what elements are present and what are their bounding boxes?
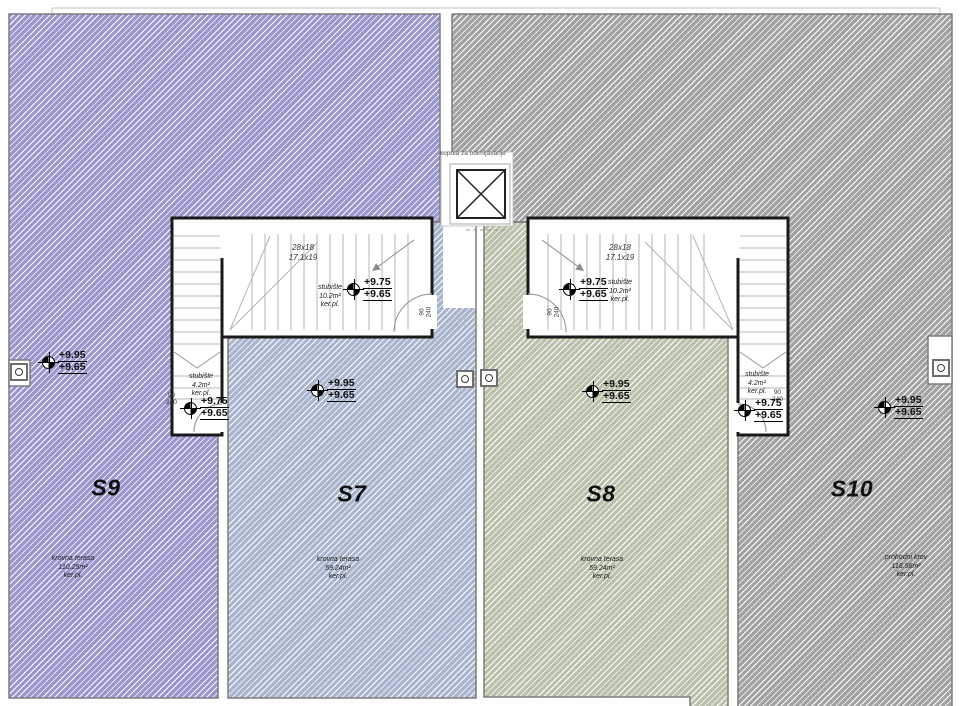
unit-label-s9: S9 [91,475,120,502]
level-marker-stair-left: +9.75+9.65 [347,277,392,301]
door-dim-left-main: 90 240 [418,307,432,318]
dashed-roof-lines [455,319,530,326]
level-marker-icon [347,283,360,296]
level-marker-icon [738,404,751,417]
level-marker-stair-small-right: +9.75+9.65 [738,398,783,422]
level-marker-s9: +9.95+9.65 [42,350,87,374]
roof-drain-icon [456,370,474,388]
level-marker-icon [42,356,55,369]
unit-label-s7: S7 [337,481,366,508]
area-block-s10: prohodni krov 118.56m² ker.pl. [885,554,927,580]
area-block-s9: krovna terasa 110.25m² ker.pl. [52,555,94,581]
level-marker-icon [311,384,324,397]
level-marker-s10: +9.95+9.65 [878,395,923,419]
level-marker-s7: +9.95+9.65 [311,378,356,402]
level-marker-stair-small-left: +9.75+9.65 [184,396,229,420]
level-marker-icon [878,401,891,414]
area-block-s7: krovna terasa 59.24m² ker.pl. [317,556,359,582]
skylight-dome [441,152,513,230]
area-block-s8: krovna terasa 59.24m² ker.pl. [581,556,623,582]
landing-area [443,222,483,308]
level-marker-s8: +9.95+9.65 [586,379,631,403]
skylight-label: kupola za odimljavanje [440,150,506,157]
unit-label-s8: S8 [586,481,615,508]
stair-run-label-right: 28x18 17.1x19 [606,243,634,262]
level-marker-icon [184,402,197,415]
door-dim-left-small: 90 240 [166,392,177,406]
roof-drain-icon [932,359,950,377]
roof-edge-line [52,8,940,14]
level-marker-icon [586,385,599,398]
level-marker-stair-right: +9.75+9.65 [563,277,608,301]
roof-drain-icon [10,363,28,381]
region-outlines [9,14,952,706]
stair-small-label-right: stubište 4.2m² ker.pl. [745,371,769,397]
roof-drain-icon [480,369,498,387]
unit-label-s10: S10 [831,476,873,503]
door-dim-right-main: 90 240 [546,307,560,318]
floor-plan: kupola za odimljavanje S9 S7 S8 S10 krov… [0,0,960,706]
plan-linework [0,0,960,706]
stair-room-label-right: stubište 10.2m² ker.pl. [608,279,632,305]
level-marker-icon [563,283,576,296]
stair-room-label-left: stubište 10.2m² ker.pl. [318,284,342,310]
stair-run-label-left: 28x18 17.1x19 [289,243,317,262]
